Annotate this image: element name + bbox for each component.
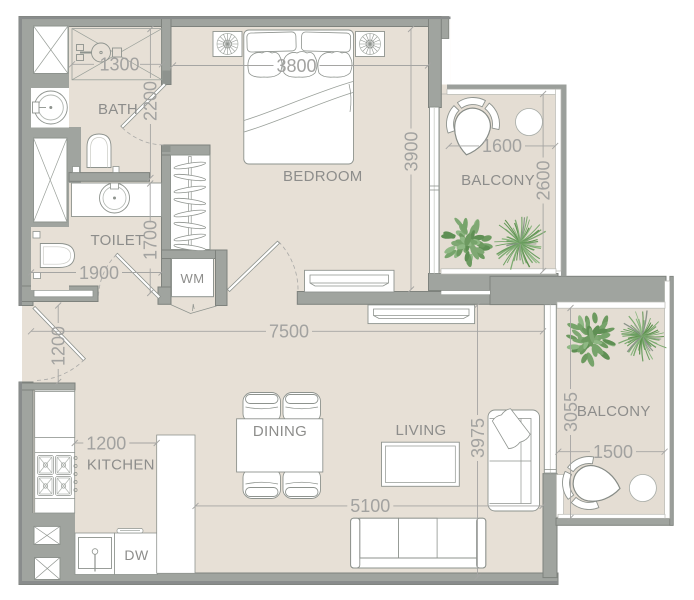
svg-text:DINING: DINING [253,423,307,440]
svg-text:2200: 2200 [141,81,161,121]
svg-text:LIVING: LIVING [396,422,447,439]
svg-text:TOILET: TOILET [90,232,144,249]
svg-text:WM: WM [180,271,204,286]
svg-text:1200: 1200 [48,326,68,366]
svg-text:BALCONY: BALCONY [577,403,651,420]
svg-text:BATH: BATH [98,101,138,118]
svg-text:5100: 5100 [350,496,390,516]
svg-text:DW: DW [124,547,149,563]
svg-text:7500: 7500 [269,322,309,342]
svg-text:2600: 2600 [533,160,553,200]
svg-text:1200: 1200 [86,433,126,453]
svg-text:3900: 3900 [401,131,421,171]
svg-text:1600: 1600 [482,136,522,156]
svg-text:BALCONY: BALCONY [461,172,535,189]
svg-text:KITCHEN: KITCHEN [87,457,155,474]
svg-text:BEDROOM: BEDROOM [283,168,363,185]
svg-text:3800: 3800 [276,56,316,76]
svg-text:3975: 3975 [468,418,488,458]
svg-text:1500: 1500 [593,442,633,462]
svg-text:1300: 1300 [99,55,139,75]
svg-text:1900: 1900 [79,263,119,283]
